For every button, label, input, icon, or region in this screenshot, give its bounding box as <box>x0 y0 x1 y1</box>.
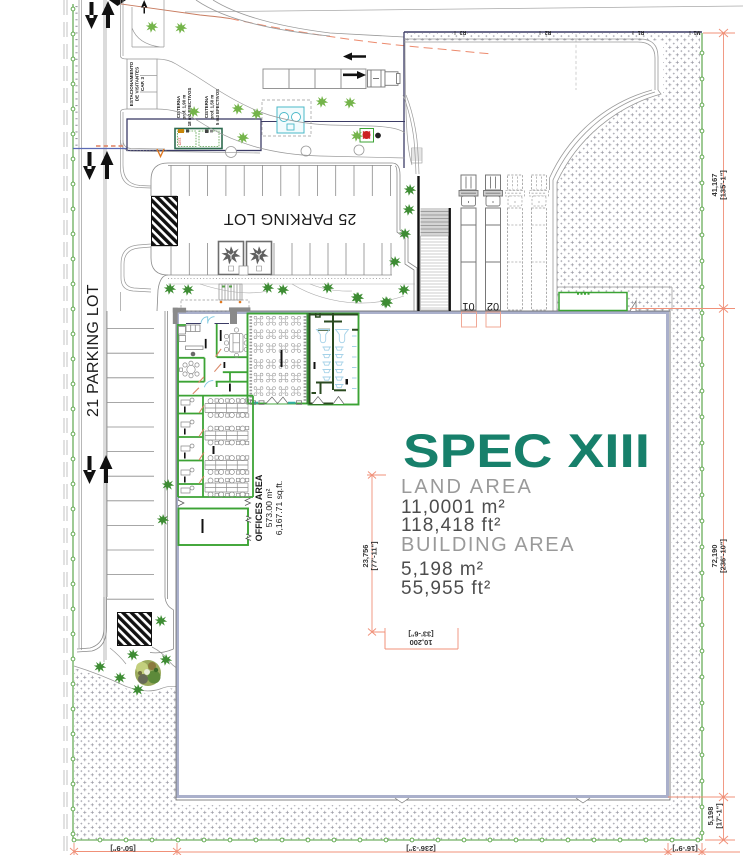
svg-text:CISTERNA: CISTERNA <box>176 95 181 118</box>
svg-text:[236'-10"]: [236'-10"] <box>719 539 728 573</box>
svg-text:[16'-9"]: [16'-9"] <box>672 844 698 853</box>
svg-text:R1: R1 <box>638 29 645 35</box>
svg-text:5,198 m²: 5,198 m² <box>401 559 484 580</box>
svg-text:[77'-11"]: [77'-11"] <box>370 541 379 571</box>
svg-text:55,955 ft²: 55,955 ft² <box>401 578 491 599</box>
svg-text:BUILDING AREA: BUILDING AREA <box>401 534 575 556</box>
svg-text:CIST.: CIST. <box>178 136 182 145</box>
svg-text:R3: R3 <box>460 29 467 35</box>
svg-text:[17'-1"]: [17'-1"] <box>715 803 724 829</box>
svg-text:118,418 ft²: 118,418 ft² <box>401 515 501 536</box>
svg-text:CAP. 3: CAP. 3 <box>140 76 145 91</box>
svg-text:LAND AREA: LAND AREA <box>401 476 533 498</box>
svg-text:CISTERNA: CISTERNA <box>204 95 209 118</box>
svg-text:prof. 1,50 m: prof. 1,50 m <box>210 95 215 120</box>
svg-text:21 PARKING LOT: 21 PARKING LOT <box>85 284 102 417</box>
svg-text:25 PARKING LOT: 25 PARKING LOT <box>224 210 357 227</box>
svg-text:R2: R2 <box>545 29 552 35</box>
svg-text:ESTACIONAMIENTO: ESTACIONAMIENTO <box>129 61 134 106</box>
svg-text:[236'-3"]: [236'-3"] <box>406 844 436 853</box>
svg-text:[135'-1"]: [135'-1"] <box>719 170 728 200</box>
svg-text:5 m3 EFECTIVOS: 5 m3 EFECTIVOS <box>215 89 220 125</box>
svg-text:573.00 m²: 573.00 m² <box>264 489 274 528</box>
svg-text:SPEC XIII: SPEC XIII <box>403 424 650 477</box>
svg-text:OFFICES AREA: OFFICES AREA <box>254 474 264 541</box>
svg-text:[33'-6"]: [33'-6"] <box>408 630 434 639</box>
svg-text:02: 02 <box>487 300 499 312</box>
svg-text:18 m3 EFECTIVOS: 18 m3 EFECTIVOS <box>187 88 192 127</box>
svg-text:01: 01 <box>462 300 474 312</box>
svg-text:DE VISITANTES: DE VISITANTES <box>135 67 140 101</box>
svg-text:prof. 1,90 m: prof. 1,90 m <box>182 95 187 120</box>
svg-text:6,167.71 sq.ft.: 6,167.71 sq.ft. <box>274 481 284 535</box>
svg-text:[50'-9"]: [50'-9"] <box>110 844 136 853</box>
svg-text:M1: M1 <box>693 29 700 35</box>
